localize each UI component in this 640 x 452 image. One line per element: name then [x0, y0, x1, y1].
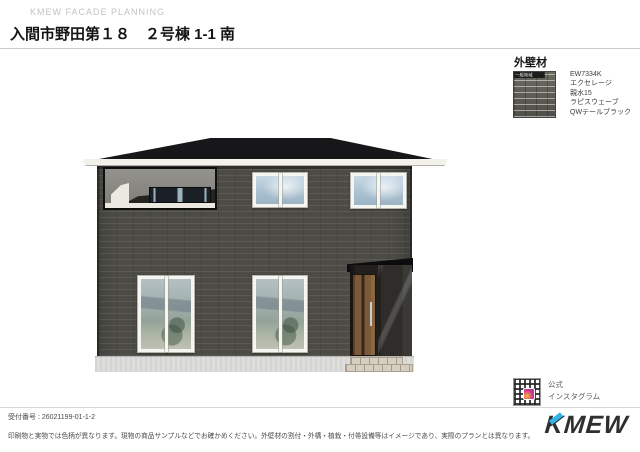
balcony-window: [149, 187, 212, 203]
receipt-number: 受付番号 : 26021199-01-1-2: [8, 412, 95, 422]
window-mullion: [165, 276, 168, 352]
product-code: EW7334K: [570, 70, 631, 79]
balcony-sill: [105, 203, 215, 208]
porch-reflection: [378, 265, 412, 358]
house-elevation: [83, 138, 447, 374]
facade-planning-sheet: KMEW FACADE PLANNING 入間市野田第１８ ２号棟 1-1 南 …: [0, 0, 640, 452]
material-swatch: 一般地域: [513, 71, 556, 118]
window-2f-center: [252, 172, 308, 208]
window-mullion: [377, 173, 380, 208]
product-grade: 親水15: [570, 89, 631, 98]
window-mullion: [279, 173, 282, 207]
product-pattern: ラピスウェーブ: [570, 98, 631, 107]
roof-fascia: [83, 159, 447, 166]
disclaimer-text: 印刷物と実物では色柄が異なります。現物の商品サンプルなどでお確かめください。外壁…: [8, 430, 534, 440]
instagram-icon: [523, 388, 535, 400]
qr-caption-line2: インスタグラム: [548, 391, 600, 402]
material-panel-heading: 外壁材: [514, 54, 547, 70]
hip-roof: [83, 138, 447, 162]
title-divider: [0, 48, 640, 49]
swatch-region-label: 一般地域: [514, 72, 545, 78]
inset-balcony: [103, 167, 217, 210]
material-product-info: EW7334K エクセレージ 親水15 ラピスウェーブ QWテールブラック: [570, 70, 631, 117]
entrance-step-lower: [345, 364, 413, 372]
instagram-qr-code: [513, 378, 541, 406]
door-handle: [370, 302, 372, 326]
window-2f-right: [350, 172, 407, 209]
window-1f-left: [137, 275, 195, 353]
window-mullion: [279, 276, 282, 352]
qr-caption-line1: 公式: [548, 379, 563, 390]
entrance-porch: [350, 265, 412, 358]
entrance-door: [352, 274, 376, 356]
product-series: エクセレージ: [570, 79, 631, 88]
footer-divider: [0, 407, 640, 408]
window-1f-center: [252, 275, 308, 353]
kmew-logo: KMEW: [545, 411, 635, 439]
product-color: QWテールブラック: [570, 108, 631, 117]
page-title: 入間市野田第１８ ２号棟 1-1 南: [10, 23, 235, 44]
brand-line: KMEW FACADE PLANNING: [30, 7, 165, 17]
